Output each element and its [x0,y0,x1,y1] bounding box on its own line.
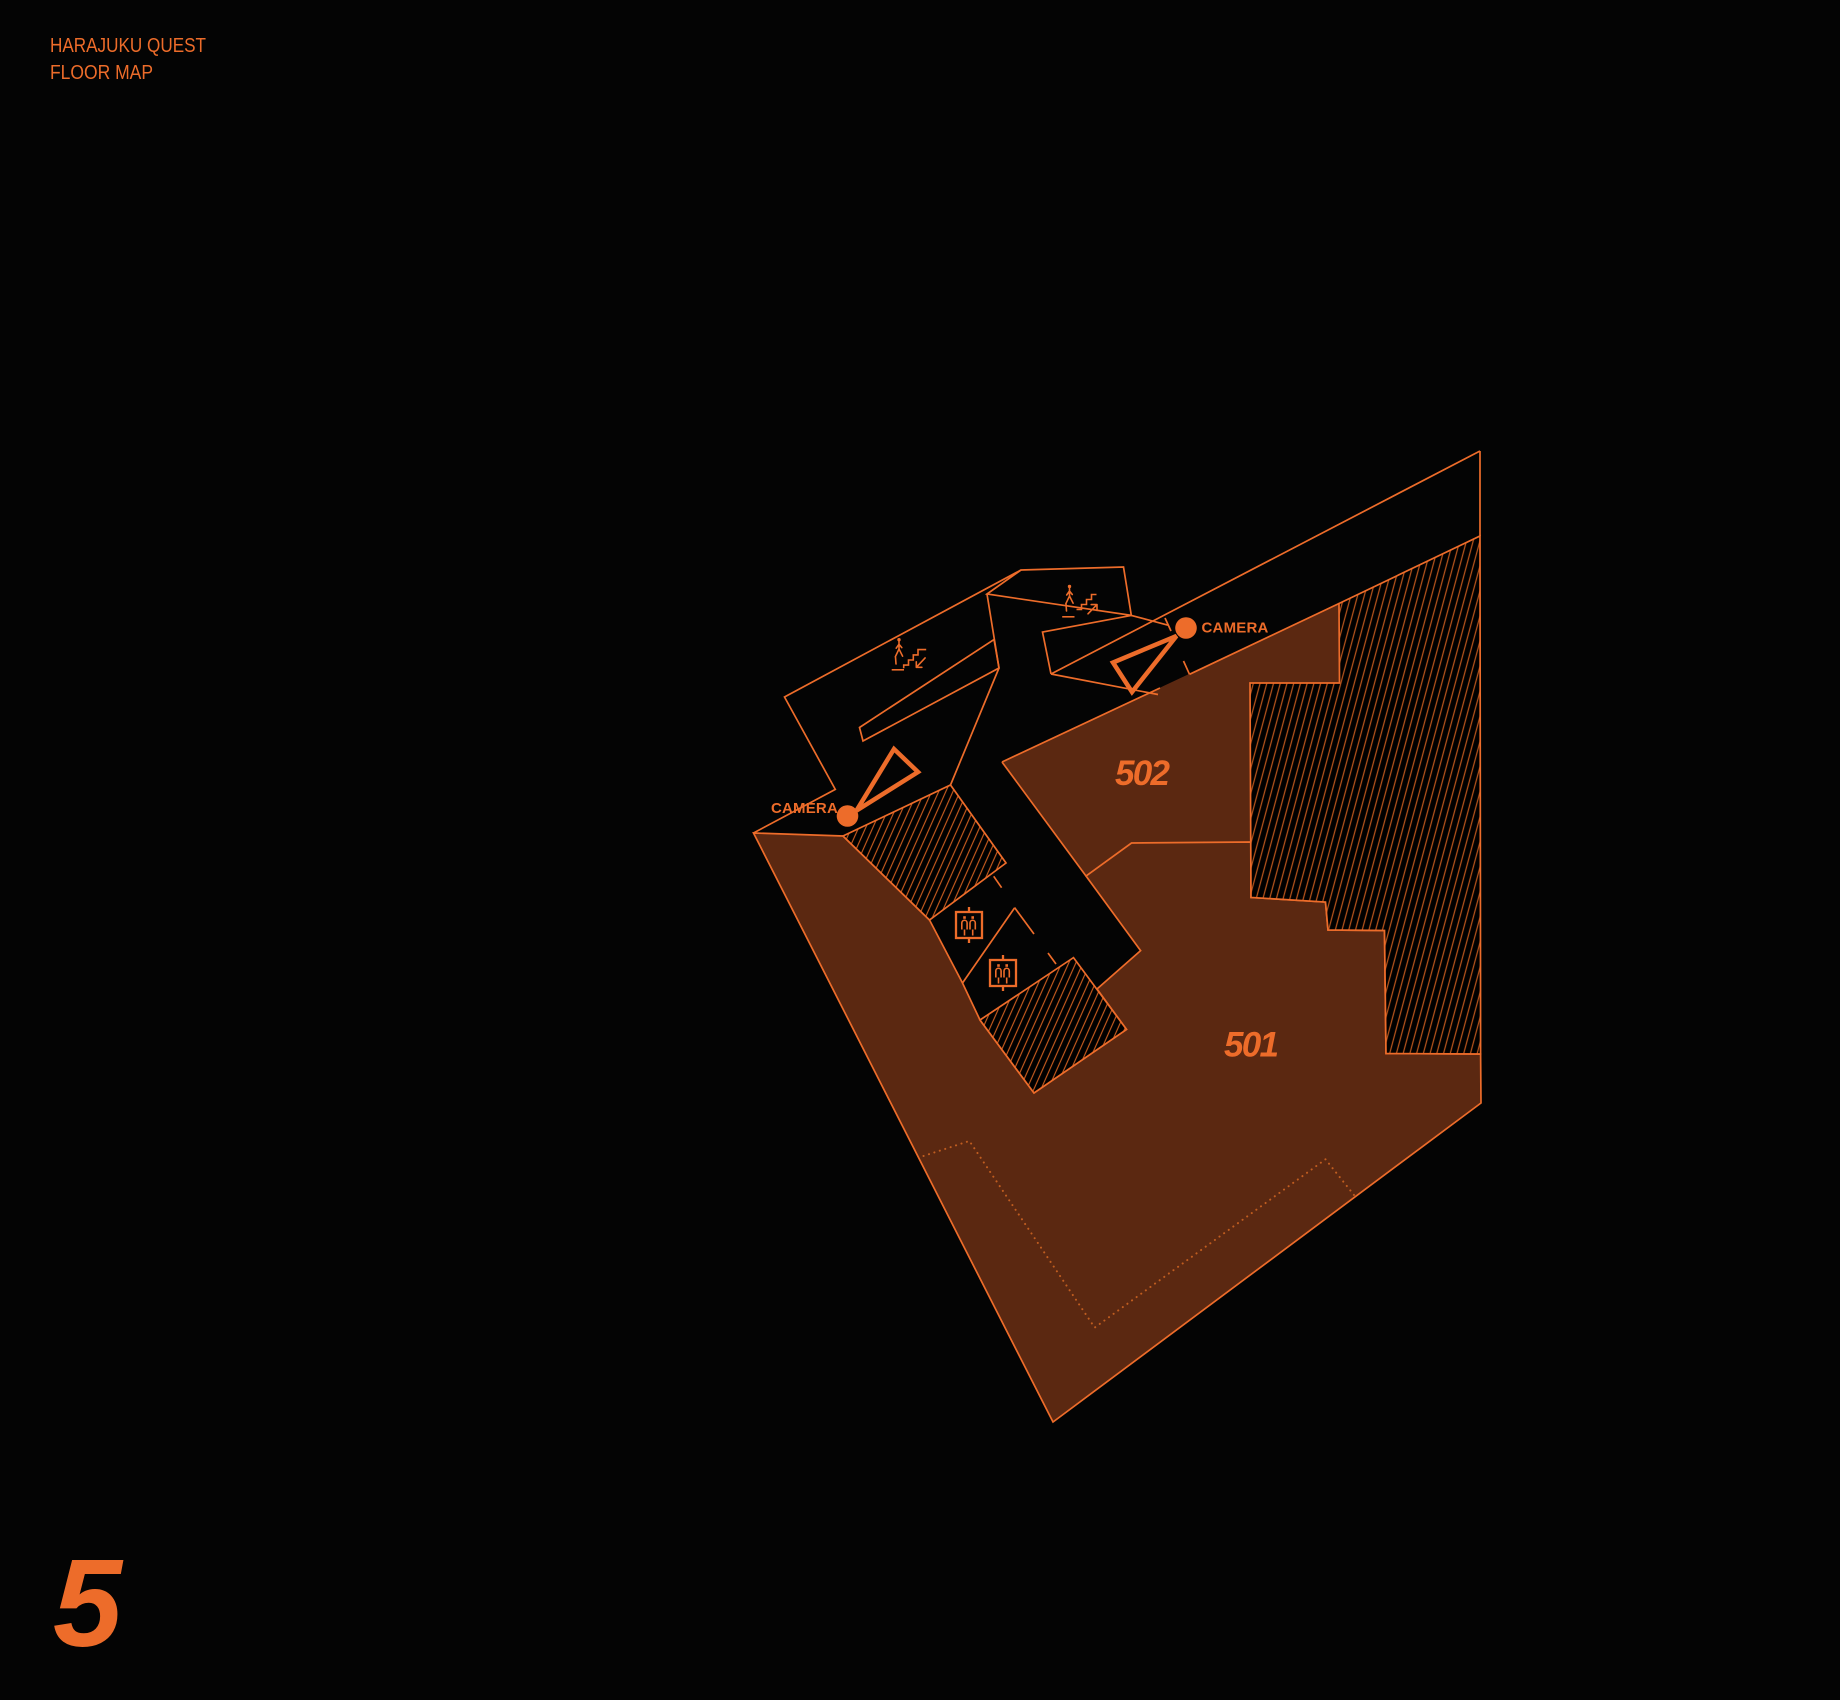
svg-text:501: 501 [1224,1026,1279,1065]
svg-text:CAMERA: CAMERA [771,800,838,817]
svg-text:FLOOR MAP: FLOOR MAP [50,61,153,84]
svg-text:5: 5 [53,1535,124,1673]
svg-text:CAMERA: CAMERA [1202,620,1269,637]
svg-text:502: 502 [1115,754,1171,793]
svg-text:HARAJUKU QUEST: HARAJUKU QUEST [50,34,206,57]
